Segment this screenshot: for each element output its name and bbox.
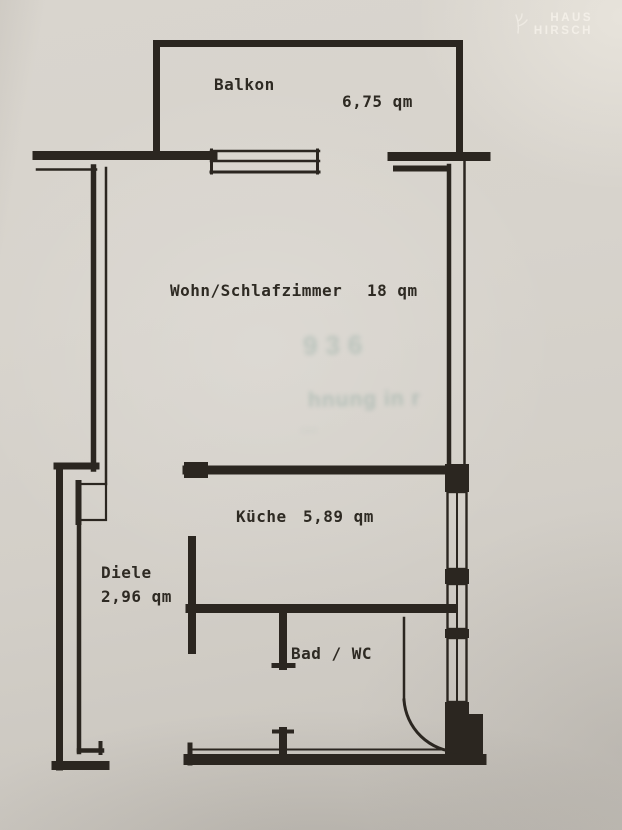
window-3 — [448, 638, 467, 702]
livingroom-kitchen-wall — [184, 462, 451, 478]
logo-line2: HIRSCH — [534, 25, 593, 38]
room-area-kueche: 5,89 qm — [303, 507, 374, 526]
floorplan-drawing — [0, 0, 622, 830]
room-label-balkon: Balkon — [214, 75, 275, 94]
floorplan-photo: Balkon 6,75 qm Wohn/Schlafzimmer 18 qm K… — [0, 0, 622, 830]
left-wall — [56, 167, 106, 767]
top-wall — [37, 150, 486, 173]
logo-line1: HAUS — [534, 12, 593, 25]
room-label-diele: Diele — [101, 563, 152, 582]
window-1 — [448, 492, 467, 569]
antlers-icon — [513, 12, 529, 34]
right-wall — [445, 161, 483, 764]
room-label-wohnzimmer: Wohn/Schlafzimmer — [170, 281, 342, 300]
room-label-bad: Bad / WC — [291, 644, 372, 663]
bath-walls — [274, 613, 293, 757]
haus-hirsch-logo: HAUS HIRSCH — [513, 12, 593, 38]
balcony-walls — [157, 44, 460, 154]
balcony-window — [211, 150, 319, 173]
wall-niche — [78, 483, 106, 522]
room-area-wohnzimmer: 18 qm — [367, 281, 418, 300]
room-label-kueche: Küche — [236, 507, 287, 526]
room-area-balkon: 6,75 qm — [342, 92, 413, 111]
room-area-diele: 2,96 qm — [101, 587, 172, 606]
